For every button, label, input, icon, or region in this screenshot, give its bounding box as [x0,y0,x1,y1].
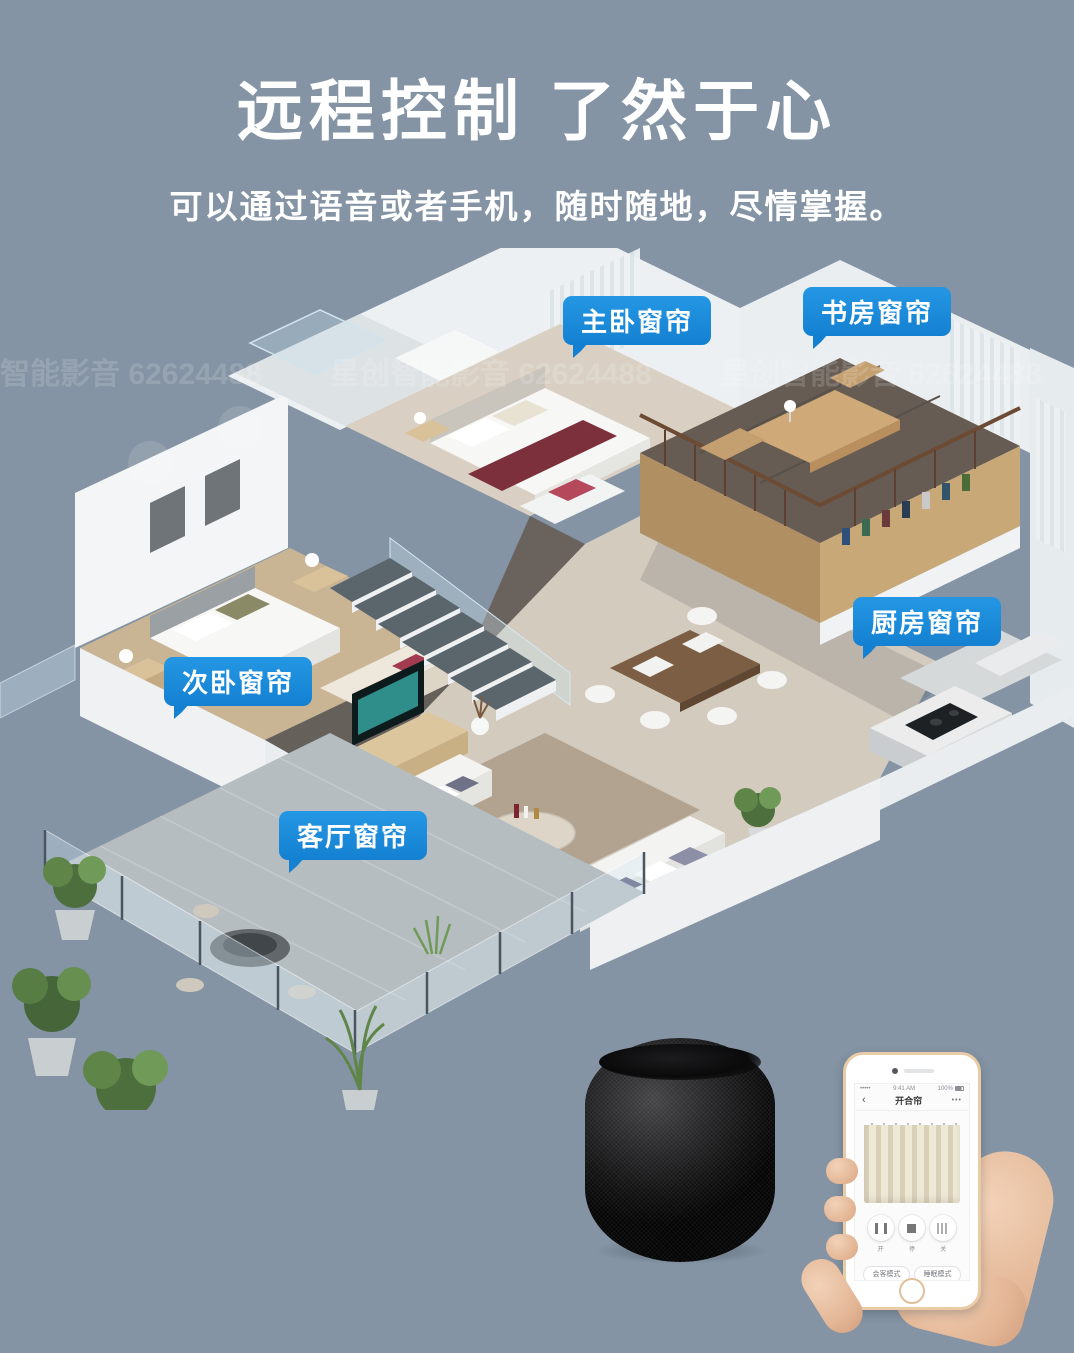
callout-label: 厨房窗帘 [871,608,983,638]
curtain-controls: 开 停 关 [855,1203,969,1253]
front-camera-icon [892,1068,898,1074]
page-subtitle: 可以通过语音或者手机，随时随地，尽情掌握。 [0,180,1074,228]
close-button[interactable] [930,1215,956,1241]
svg-text:星创智能影音 62624488: 星创智能影音 62624488 [0,358,262,391]
app-nav-bar: ‹ 开合帘 ••• [855,1092,969,1111]
status-time: 9:41 AM [893,1086,915,1092]
open-control[interactable]: 开 [868,1215,894,1253]
house-cutaway-illustration: 星创智能影音 62624488 星创智能影音 62624488 星创智能影音 6… [0,248,1074,1110]
page-title: 远程控制 了然于心 [0,58,1074,154]
open-label: 开 [868,1244,894,1253]
mode-button-2[interactable]: 睡眠模式 [914,1266,961,1281]
svg-text:星创智能影音 62624488: 星创智能影音 62624488 [330,358,652,391]
close-control[interactable]: 关 [930,1215,956,1253]
callout-kitchen-curtain: 厨房窗帘 [853,597,1001,646]
hand-finger [824,1196,856,1222]
open-curtain-icon [875,1223,887,1234]
curtain-app-screen: ••••• 9:41 AM 100% ‹ 开合帘 ••• 开 停 关 [854,1083,970,1281]
stop-icon [907,1224,916,1233]
signal-icon: ••••• [860,1086,871,1092]
earpiece-speaker [904,1069,934,1073]
header: 远程控制 了然于心 可以通过语音或者手机，随时随地，尽情掌握。 [0,0,1074,228]
callout-living-room-curtain: 客厅窗帘 [279,811,427,860]
smartphone: ••••• 9:41 AM 100% ‹ 开合帘 ••• 开 停 关 [843,1052,981,1310]
callout-label: 次卧窗帘 [182,668,294,698]
smart-speaker [585,1038,775,1262]
mode-button-1[interactable]: 会客模式 [863,1266,910,1281]
callout-label: 主卧窗帘 [581,307,693,337]
back-button[interactable]: ‹ [862,1096,866,1105]
callout-master-bedroom-curtain: 主卧窗帘 [563,296,711,345]
battery-icon [955,1086,964,1091]
home-button[interactable] [899,1278,925,1304]
curtain-preview [864,1121,960,1203]
close-label: 关 [930,1244,956,1253]
hand-finger [826,1234,858,1260]
menu-button[interactable]: ••• [952,1097,962,1104]
pause-label: 停 [899,1244,925,1253]
status-battery: 100% [938,1086,964,1092]
pause-button[interactable] [899,1215,925,1241]
callout-study-curtain: 书房窗帘 [803,287,951,336]
callout-second-bedroom-curtain: 次卧窗帘 [164,657,312,706]
svg-text:星创智能影音 62624488: 星创智能影音 62624488 [720,358,1042,391]
open-button[interactable] [868,1215,894,1241]
hand-finger [826,1158,858,1184]
scene-modes: 会客模式 睡眠模式 起床模式 透光模式 [855,1253,969,1281]
poster: { "colors": { "background": "#8494a4", "… [0,0,1074,1310]
app-title: 开合帘 [895,1094,922,1107]
watermark: 星创智能影音 62624488 星创智能影音 62624488 星创智能影音 6… [0,358,1042,391]
status-bar: ••••• 9:41 AM 100% [855,1084,969,1092]
pause-control[interactable]: 停 [899,1215,925,1253]
curtain-image [864,1125,960,1203]
close-curtain-icon [937,1223,949,1234]
callout-label: 书房窗帘 [821,298,933,328]
callout-label: 客厅窗帘 [297,822,409,852]
